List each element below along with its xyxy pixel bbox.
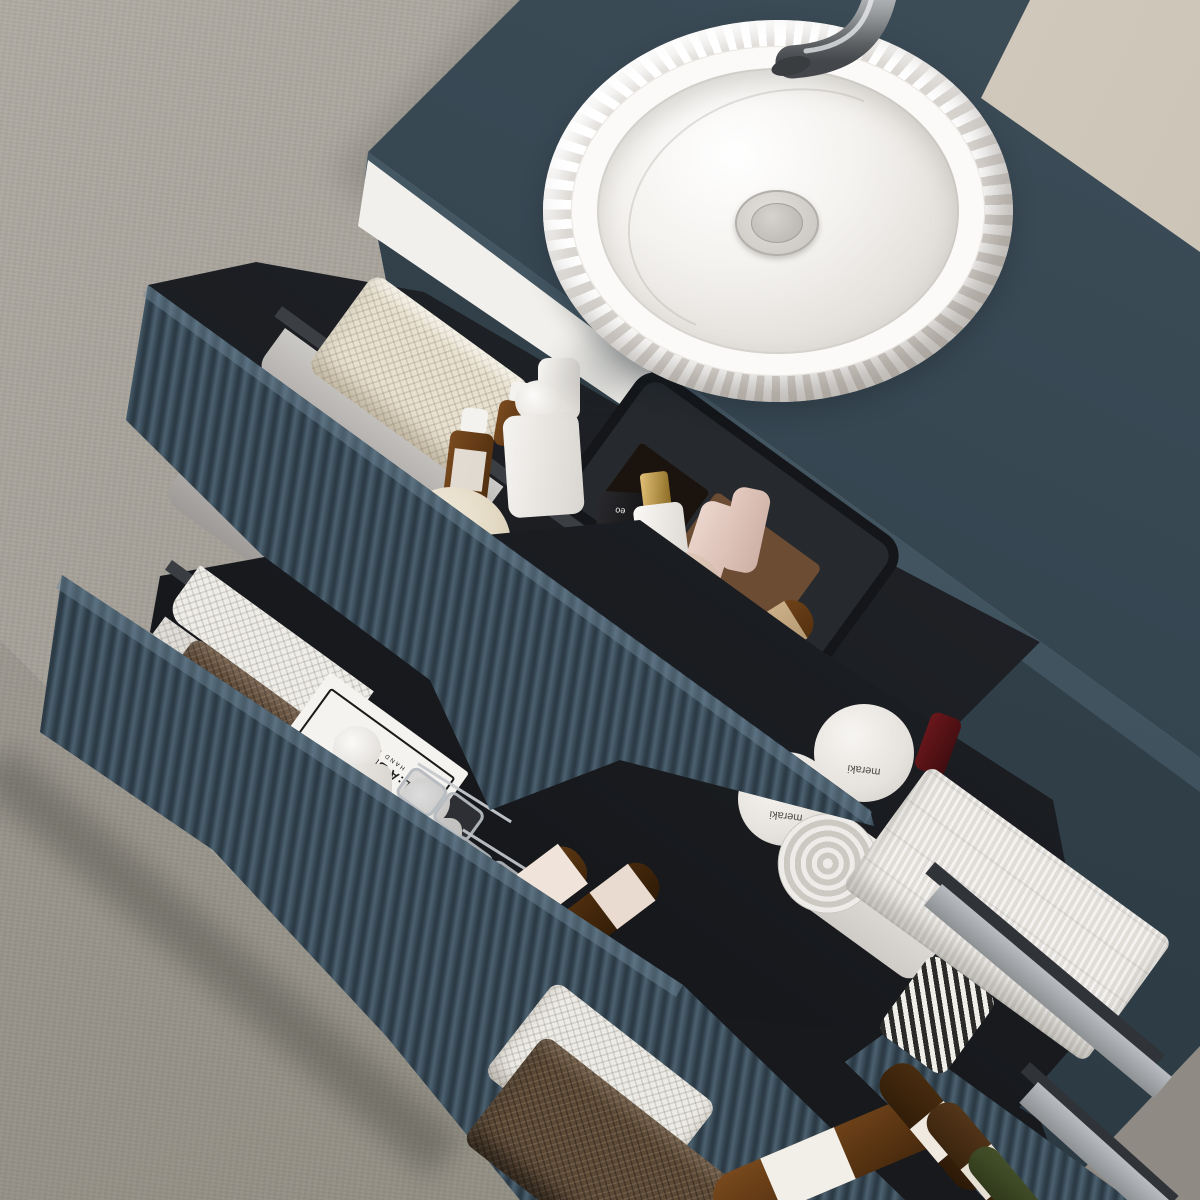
bottle-label: [450, 448, 487, 492]
sink-drain: [735, 190, 819, 256]
faucet: [688, 0, 928, 136]
meraki-label: meraki: [828, 760, 901, 781]
bathroom-vanity-photo: eo LIERAC L:A BRUKET HAND CREAM: [0, 0, 1200, 1200]
eo-label: eo: [607, 504, 634, 518]
drain-cap: [751, 203, 803, 243]
